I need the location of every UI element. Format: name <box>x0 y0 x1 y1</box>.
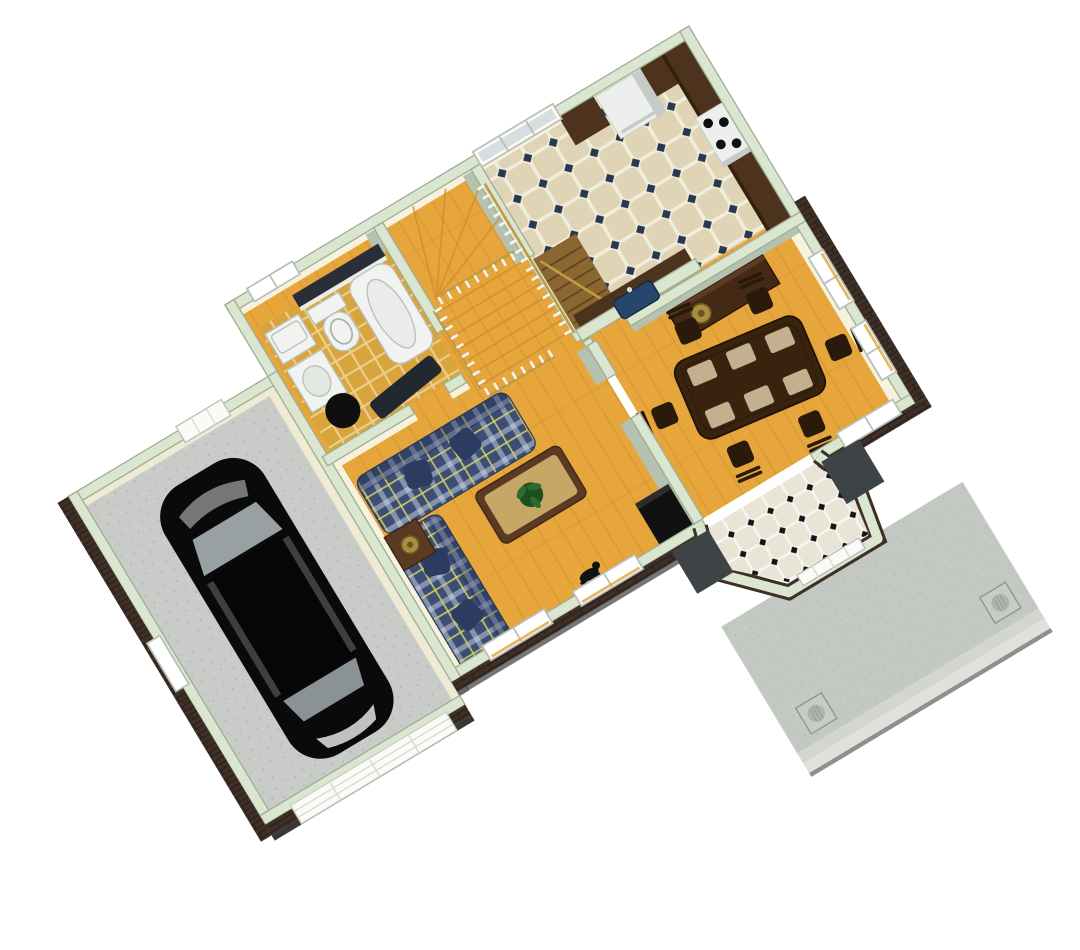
house-group <box>13 17 1064 950</box>
floorplan-stage <box>0 0 1080 950</box>
floorplan-svg <box>0 0 1080 950</box>
